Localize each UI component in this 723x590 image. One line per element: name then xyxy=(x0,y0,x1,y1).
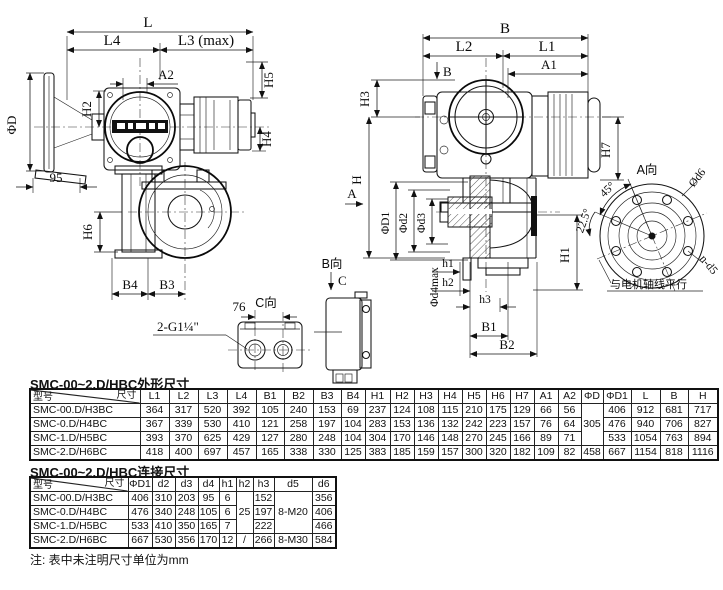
cell: 159 xyxy=(414,446,438,461)
dim-label-d6: Ød6 xyxy=(687,166,709,189)
connection-dimensions-table: 尺寸型号 ΦD1d2d3d4h1h2h3d5d6 SMC-00.D/H3BC 4… xyxy=(29,476,337,549)
col-header: ΦD1 xyxy=(128,477,152,492)
dim-label-L2: L2 xyxy=(456,39,473,55)
model-cell: SMC-00.D/H3BC xyxy=(30,492,128,506)
cell: 476 xyxy=(128,506,152,520)
col-header: H2 xyxy=(390,389,414,404)
dim-label-B1: B1 xyxy=(481,319,496,334)
dim-label-L1: L1 xyxy=(539,39,556,55)
cell: 584 xyxy=(312,534,336,549)
cell: 76 xyxy=(534,418,558,432)
cell: 7 xyxy=(219,520,236,534)
cell: 266 xyxy=(253,534,274,549)
dim-label-A2: A2 xyxy=(158,67,174,82)
cell: 533 xyxy=(603,432,631,446)
dim-label-B3: B3 xyxy=(159,277,174,292)
cell: 82 xyxy=(558,446,581,461)
dim-label-A1: A1 xyxy=(541,57,557,72)
col-header: d4 xyxy=(198,477,219,492)
dim-label-H6: H6 xyxy=(80,224,95,240)
col-header: B3 xyxy=(313,389,341,404)
c-view-box: C向 76 xyxy=(228,295,312,372)
cell: 203 xyxy=(175,492,198,506)
col-header: A1 xyxy=(534,389,558,404)
dim-label-H3: H3 xyxy=(357,91,372,107)
dim-label-n-d5: n-d5 xyxy=(697,253,720,277)
c-direction-label: C xyxy=(338,273,347,288)
corner-bottom-label: 型号 xyxy=(33,391,53,404)
cell: 182 xyxy=(510,446,534,461)
parallel-axis-note: 与电机轴线平行 xyxy=(610,277,687,291)
cell: 320 xyxy=(486,446,510,461)
col-header: h3 xyxy=(253,477,274,492)
cell: 121 xyxy=(256,418,284,432)
cell: 127 xyxy=(256,432,284,446)
cell: 458 xyxy=(581,446,603,461)
a-view-flange: 45° 22.5° A向 Ød6 n-d5 与电机轴线平行 xyxy=(574,162,720,291)
col-header: B4 xyxy=(341,389,365,404)
cell: 667 xyxy=(603,446,631,461)
dim-label-H5: H5 xyxy=(261,72,276,88)
cell: 383 xyxy=(365,446,390,461)
cell: 667 xyxy=(128,534,152,549)
cell: 115 xyxy=(438,404,462,418)
dim-label-H7: H7 xyxy=(598,142,613,158)
cell: 280 xyxy=(284,432,313,446)
cell: 248 xyxy=(313,432,341,446)
cell: 153 xyxy=(390,418,414,432)
cell: 129 xyxy=(510,404,534,418)
cell: 818 xyxy=(660,446,688,461)
cell: 104 xyxy=(341,418,365,432)
dim-label-H2: H2 xyxy=(79,101,94,117)
cell: 418 xyxy=(140,446,169,461)
col-header: B xyxy=(660,389,688,404)
cell: 827 xyxy=(688,418,718,432)
cell: 339 xyxy=(169,418,198,432)
cell: 165 xyxy=(198,520,219,534)
cell: 242 xyxy=(462,418,486,432)
cell: 166 xyxy=(510,432,534,446)
cell: 310 xyxy=(152,492,175,506)
col-header: L1 xyxy=(140,389,169,404)
col-header: d6 xyxy=(312,477,336,492)
technical-drawing: L L4 L3 (max) A2 ΦD H2 H5 H4 95 xyxy=(0,0,723,388)
cell: 12 xyxy=(219,534,236,549)
dim-label-L: L xyxy=(143,15,152,31)
cell: 223 xyxy=(486,418,510,432)
cell: 71 xyxy=(558,432,581,446)
cell: 237 xyxy=(365,404,390,418)
cell: 367 xyxy=(140,418,169,432)
model-cell: SMC-00.D/H3BC xyxy=(30,404,140,418)
cell: 533 xyxy=(128,520,152,534)
cell: 109 xyxy=(534,446,558,461)
b-view-title: B向 xyxy=(322,256,343,271)
cell: 457 xyxy=(227,446,256,461)
dim-label-h3: h3 xyxy=(479,294,491,306)
col-header: B2 xyxy=(284,389,313,404)
unit-note: 注: 表中未注明尺寸单位为mm xyxy=(30,551,189,568)
table-row: SMC-2.D/H6BC 66753035617012 / 266 8-M30 … xyxy=(30,534,336,549)
right-front-view: B L2 L1 A1 B H3 H A ΦD1 Φd2 Φd3 xyxy=(345,21,624,358)
cell: 912 xyxy=(631,404,660,418)
cell: 136 xyxy=(414,418,438,432)
col-header: L3 xyxy=(198,389,227,404)
cell: 245 xyxy=(486,432,510,446)
cell: 350 xyxy=(175,520,198,534)
cell: 148 xyxy=(438,432,462,446)
cell-h2-merged: 25 xyxy=(236,492,253,534)
dim-label-B2: B2 xyxy=(499,337,514,352)
cell: 406 xyxy=(603,404,631,418)
cell-d5-merged: 8-M20 xyxy=(274,492,312,534)
cell: 338 xyxy=(284,446,313,461)
cell: 258 xyxy=(284,418,313,432)
col-header: ΦD1 xyxy=(603,389,631,404)
col-header: H5 xyxy=(462,389,486,404)
col-header: H xyxy=(688,389,718,404)
cell: 240 xyxy=(284,404,313,418)
cell: 1116 xyxy=(688,446,718,461)
dim-label-B: B xyxy=(500,21,510,37)
cell: 170 xyxy=(390,432,414,446)
cell: 64 xyxy=(558,418,581,432)
corner-header: 尺寸型号 xyxy=(30,477,128,492)
cell: 429 xyxy=(227,432,256,446)
table-row: SMC-00.D/H3BC 406310203956 25 152 8-M20 … xyxy=(30,492,336,506)
dim-label-H1: H1 xyxy=(557,247,572,263)
corner-bottom-label: 型号 xyxy=(33,479,53,492)
col-header: H6 xyxy=(486,389,510,404)
corner-top-label: 尺寸 xyxy=(117,389,137,402)
cell: 410 xyxy=(152,520,175,534)
dim-label-PhiD: ΦD xyxy=(4,116,19,135)
dim-label-22-5deg: 22.5° xyxy=(574,207,594,235)
col-header: d3 xyxy=(175,477,198,492)
model-cell: SMC-0.D/H4BC xyxy=(30,418,140,432)
table-header-row: 尺寸型号 L1L2L3L4B1B2B3B4H1H2H3H4H5H6H7A1A2Φ… xyxy=(30,389,718,404)
cell: 125 xyxy=(341,446,365,461)
col-header: A2 xyxy=(558,389,581,404)
cell: 370 xyxy=(169,432,198,446)
b-view-box: B向 C xyxy=(314,256,371,383)
conduit-label: 2-G1¼" xyxy=(157,319,199,334)
dim-label-L3max: L3 (max) xyxy=(178,33,234,49)
dim-label-Phid4max: Φd4max xyxy=(429,267,441,307)
cell: 530 xyxy=(152,534,175,549)
model-cell: SMC-2.D/H6BC xyxy=(30,534,128,549)
cell: 520 xyxy=(198,404,227,418)
cell: 104 xyxy=(341,432,365,446)
cell: 6 xyxy=(219,506,236,520)
cell: 108 xyxy=(414,404,438,418)
cell: 222 xyxy=(253,520,274,534)
cell: 95 xyxy=(198,492,219,506)
corner-top-label: 尺寸 xyxy=(105,477,125,490)
cell: 56 xyxy=(558,404,581,418)
dim-label-L4: L4 xyxy=(104,33,121,49)
cell: 300 xyxy=(462,446,486,461)
col-header: d2 xyxy=(152,477,175,492)
cell: 157 xyxy=(438,446,462,461)
table-row: SMC-1.D/H5BC 393370625429127280248104304… xyxy=(30,432,718,446)
model-cell: SMC-2.D/H6BC xyxy=(30,446,140,461)
dim-label-PhiD1: ΦD1 xyxy=(380,212,392,235)
cell: 152 xyxy=(253,492,274,506)
cell: 175 xyxy=(486,404,510,418)
dim-label-95: 95 xyxy=(50,170,63,185)
cell: 894 xyxy=(688,432,718,446)
cell: 6 xyxy=(219,492,236,506)
cell-phiD-merged: 305 xyxy=(581,404,603,446)
cell: 153 xyxy=(313,404,341,418)
cell: 124 xyxy=(390,404,414,418)
cell: 406 xyxy=(128,492,152,506)
cell: 146 xyxy=(414,432,438,446)
cell: 697 xyxy=(198,446,227,461)
cell: 185 xyxy=(390,446,414,461)
cell: 1054 xyxy=(631,432,660,446)
cell: 210 xyxy=(462,404,486,418)
dim-label-B4: B4 xyxy=(122,277,138,292)
cell: 393 xyxy=(140,432,169,446)
corner-header: 尺寸型号 xyxy=(30,389,140,404)
cell: 356 xyxy=(175,534,198,549)
cell: 105 xyxy=(256,404,284,418)
col-header: d5 xyxy=(274,477,312,492)
dim-label-h2: h2 xyxy=(442,277,454,289)
cell: 89 xyxy=(534,432,558,446)
cell: 364 xyxy=(140,404,169,418)
model-cell: SMC-1.D/H5BC xyxy=(30,432,140,446)
cell: 400 xyxy=(169,446,198,461)
col-header: H3 xyxy=(414,389,438,404)
table-header-row: 尺寸型号 ΦD1d2d3d4h1h2h3d5d6 xyxy=(30,477,336,492)
col-header: L xyxy=(631,389,660,404)
cell: 706 xyxy=(660,418,688,432)
table-row: SMC-2.D/H6BC 418400697457165338330125383… xyxy=(30,446,718,461)
cell: 717 xyxy=(688,404,718,418)
col-header: L2 xyxy=(169,389,198,404)
col-header: L4 xyxy=(227,389,256,404)
outline-dimensions-table: 尺寸型号 L1L2L3L4B1B2B3B4H1H2H3H4H5H6H7A1A2Φ… xyxy=(29,388,719,461)
cell: 530 xyxy=(198,418,227,432)
cell: 170 xyxy=(198,534,219,549)
col-header: ΦD xyxy=(581,389,603,404)
cell: / xyxy=(236,534,253,549)
cell: 356 xyxy=(312,492,336,506)
a-view-title: A向 xyxy=(637,162,658,177)
cell: 8-M30 xyxy=(274,534,312,549)
cell: 165 xyxy=(256,446,284,461)
view-arrow-A: A xyxy=(347,186,357,201)
cell: 330 xyxy=(313,446,341,461)
cell: 197 xyxy=(313,418,341,432)
cell: 406 xyxy=(312,506,336,520)
cell: 763 xyxy=(660,432,688,446)
cell: 1154 xyxy=(631,446,660,461)
cell: 197 xyxy=(253,506,274,520)
cell: 940 xyxy=(631,418,660,432)
col-header: H4 xyxy=(438,389,462,404)
cell: 476 xyxy=(603,418,631,432)
dim-label-H4: H4 xyxy=(259,131,274,147)
cell: 105 xyxy=(198,506,219,520)
col-header: h2 xyxy=(236,477,253,492)
cell: 270 xyxy=(462,432,486,446)
dim-label-h1: h1 xyxy=(442,258,454,270)
cell: 157 xyxy=(510,418,534,432)
cell: 283 xyxy=(365,418,390,432)
col-header: H1 xyxy=(365,389,390,404)
cell: 66 xyxy=(534,404,558,418)
dim-label-H: H xyxy=(349,175,364,184)
cell: 132 xyxy=(438,418,462,432)
dim-label-Phid2: Φd2 xyxy=(398,213,410,233)
cell: 304 xyxy=(365,432,390,446)
dim-label-45deg: 45° xyxy=(598,180,618,200)
cell: 248 xyxy=(175,506,198,520)
model-cell: SMC-1.D/H5BC xyxy=(30,520,128,534)
cell: 410 xyxy=(227,418,256,432)
cell: 317 xyxy=(169,404,198,418)
col-header: H7 xyxy=(510,389,534,404)
col-header: h1 xyxy=(219,477,236,492)
cell: 392 xyxy=(227,404,256,418)
cell: 69 xyxy=(341,404,365,418)
cell: 625 xyxy=(198,432,227,446)
table-row: SMC-00.D/H3BC 36431752039210524015369237… xyxy=(30,404,718,418)
dim-label-76: 76 xyxy=(233,299,247,314)
view-arrow-B: B xyxy=(443,64,452,79)
table-row: SMC-0.D/H4BC 367339530410121258197104283… xyxy=(30,418,718,432)
c-view-title: C向 xyxy=(255,295,277,310)
model-cell: SMC-0.D/H4BC xyxy=(30,506,128,520)
dim-label-Phid3: Φd3 xyxy=(416,213,428,233)
cell: 681 xyxy=(660,404,688,418)
col-header: B1 xyxy=(256,389,284,404)
cell: 340 xyxy=(152,506,175,520)
cell: 466 xyxy=(312,520,336,534)
